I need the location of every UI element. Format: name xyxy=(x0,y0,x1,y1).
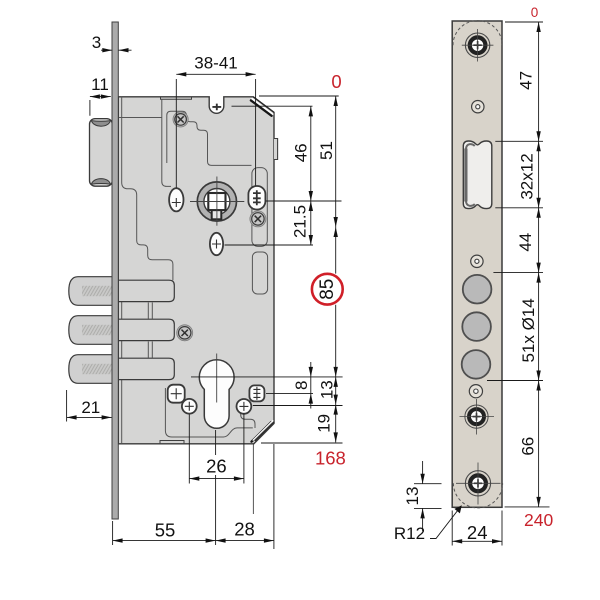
svg-text:240: 240 xyxy=(524,510,553,530)
svg-text:19: 19 xyxy=(315,414,334,433)
svg-text:51x Ø14: 51x Ø14 xyxy=(519,298,538,362)
svg-text:13: 13 xyxy=(403,487,422,506)
svg-text:0: 0 xyxy=(331,71,341,92)
svg-text:24: 24 xyxy=(467,522,488,543)
svg-text:55: 55 xyxy=(155,520,176,541)
svg-text:3: 3 xyxy=(92,33,101,52)
svg-text:21.5: 21.5 xyxy=(291,205,310,238)
svg-text:66: 66 xyxy=(519,437,538,456)
svg-text:26: 26 xyxy=(206,456,227,477)
svg-text:13: 13 xyxy=(317,380,336,399)
svg-text:8: 8 xyxy=(292,381,311,390)
svg-text:21: 21 xyxy=(81,398,100,417)
svg-text:85: 85 xyxy=(317,279,338,300)
svg-text:11: 11 xyxy=(91,75,109,94)
svg-text:44: 44 xyxy=(516,233,535,252)
svg-text:0: 0 xyxy=(531,5,539,20)
svg-text:46: 46 xyxy=(292,143,311,162)
svg-text:28: 28 xyxy=(234,519,255,540)
svg-text:168: 168 xyxy=(315,448,346,469)
svg-text:38-41: 38-41 xyxy=(194,54,237,73)
svg-text:51: 51 xyxy=(317,141,336,160)
svg-text:R12: R12 xyxy=(394,524,425,543)
svg-text:47: 47 xyxy=(516,71,535,90)
svg-text:32x12: 32x12 xyxy=(517,153,536,199)
